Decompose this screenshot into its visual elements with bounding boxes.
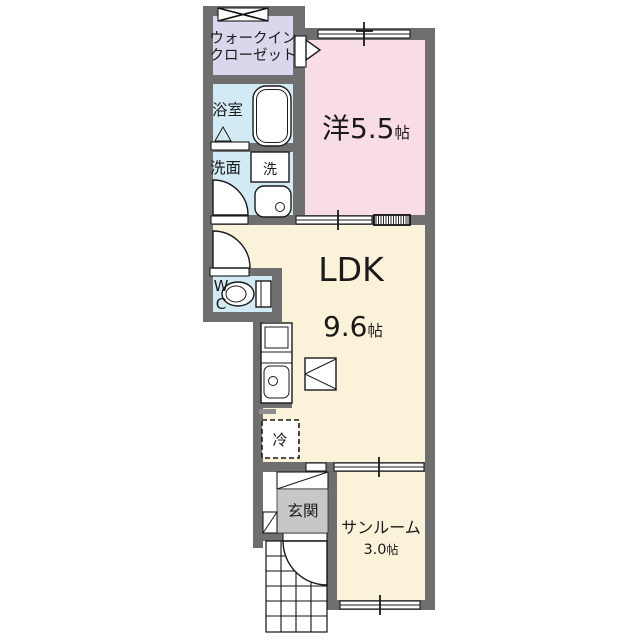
wall-segment xyxy=(203,75,305,84)
sunroom-size-label: 3.0帖 xyxy=(363,542,398,558)
wc-label: C xyxy=(216,295,226,313)
toilet-icon xyxy=(222,281,271,307)
washing-machine-label: 洗 xyxy=(263,162,277,178)
walk-in-closet-label: クローゼット xyxy=(210,47,297,64)
shoe-cabinet-icon xyxy=(263,512,277,533)
kitchen-sink-icon xyxy=(261,323,292,403)
bathtub-icon xyxy=(253,86,291,146)
wall-segment xyxy=(203,312,282,322)
refrigerator-label: 冷 xyxy=(272,431,287,449)
entrance-door xyxy=(283,533,327,541)
wc-label: W xyxy=(214,277,229,295)
washroom-door xyxy=(211,216,248,224)
wall-stub xyxy=(259,409,276,414)
floorplan-canvas: ウォークイン クローゼット 浴室 洗面 洗 洋5.5帖 LDK 9.6帖 W C… xyxy=(0,0,640,640)
kitchen-counter-icon xyxy=(305,358,336,390)
washroom-label: 洗面 xyxy=(210,159,241,177)
walk-in-closet-label: ウォークイン xyxy=(210,30,297,47)
sunroom-label: サンルーム xyxy=(341,518,421,537)
wall-segment xyxy=(425,28,435,610)
closet-hatch-icon xyxy=(218,8,268,21)
wc-door xyxy=(210,268,249,276)
floorplan-svg: ウォークイン クローゼット 浴室 洗面 洗 洋5.5帖 LDK 9.6帖 W C… xyxy=(0,0,640,640)
washbasin-icon xyxy=(255,186,291,217)
shoe-cabinet-icon xyxy=(277,472,328,489)
bathroom-label: 浴室 xyxy=(212,101,243,119)
bathroom-door xyxy=(211,142,249,150)
ldk-label: LDK xyxy=(318,250,385,289)
entrance-label: 玄関 xyxy=(287,502,318,520)
hall-door xyxy=(306,463,326,471)
exterior-cutout xyxy=(203,322,253,472)
